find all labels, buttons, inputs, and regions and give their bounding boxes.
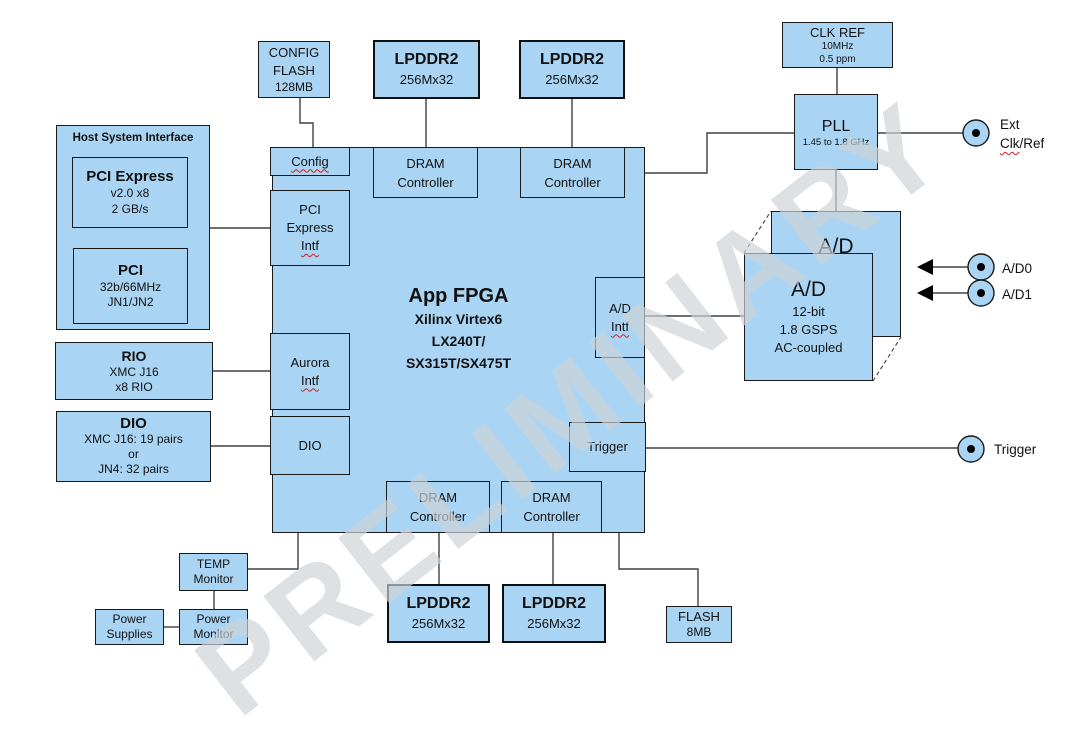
block-line: DRAM <box>532 488 570 507</box>
block-line: CONFIG <box>269 44 320 62</box>
dio-intf-block: DIO <box>270 416 350 475</box>
lpddr2-top-right-block: LPDDR2 256Mx32 <box>519 40 625 99</box>
ad0-label: A/D0 <box>1002 259 1032 278</box>
power-monitor-block: Power Monitor <box>179 609 248 645</box>
dashed-edge-topleft <box>744 211 771 253</box>
fpga-title-line: Xilinx Virtex6 <box>272 308 645 330</box>
block-line: Intf <box>301 237 319 255</box>
block-line: XMC J16 <box>109 365 158 381</box>
ext-clk-ref-label: Ext Clk/Ref <box>1000 115 1044 153</box>
config-intf-block: Config <box>270 147 350 176</box>
block-line: x8 RIO <box>115 380 152 396</box>
block-line: AC-coupled <box>775 339 843 357</box>
block-line: 1.45 to 1.8 GHz <box>803 137 870 149</box>
ad0-arrowhead-icon <box>917 259 933 275</box>
dram-controller-top-left-block: DRAM Controller <box>373 147 478 198</box>
ad-intf-block: A/D Intf <box>595 277 645 358</box>
block-title: CLK REF <box>810 25 865 40</box>
lpddr2-top-left-block: LPDDR2 256Mx32 <box>373 40 480 99</box>
dram-controller-bottom-left-block: DRAM Controller <box>386 481 490 533</box>
pci-express-intf-block: PCI Express Intf <box>270 190 350 266</box>
block-line: 0.5 ppm <box>819 53 855 66</box>
block-line: 32b/66MHz <box>100 280 161 296</box>
rio-block: RIO XMC J16 x8 RIO <box>55 342 213 400</box>
block-line: v2.0 x8 <box>111 186 150 202</box>
block-line: DRAM <box>406 154 444 173</box>
block-line: Controller <box>410 507 466 526</box>
block-line: TEMP <box>197 557 230 573</box>
block-line: 256Mx32 <box>400 70 453 89</box>
ad1-arrowhead-icon <box>917 285 933 301</box>
block-line: FLASH <box>678 609 720 625</box>
block-line: 128MB <box>275 80 313 96</box>
block-line: 256Mx32 <box>527 614 580 633</box>
block-line: Intf <box>611 318 629 336</box>
wire-configflash-config <box>300 98 313 147</box>
ref-word: /Ref <box>1020 136 1045 151</box>
host-system-interface-title: Host System Interface <box>57 131 209 145</box>
block-line: Monitor <box>193 627 233 643</box>
dashed-edge-bottomright <box>873 337 901 381</box>
ad1-label: A/D1 <box>1002 285 1032 304</box>
power-supplies-block: Power Supplies <box>95 609 164 645</box>
wire-fpga-flash <box>619 533 698 606</box>
block-line: PCI <box>299 201 321 219</box>
block-title: LPDDR2 <box>394 50 458 70</box>
trigger-intf-block: Trigger <box>569 422 646 472</box>
temp-monitor-block: TEMP Monitor <box>179 553 248 591</box>
config-flash-block: CONFIG FLASH 128MB <box>258 41 330 98</box>
dram-controller-bottom-right-block: DRAM Controller <box>501 481 602 533</box>
block-line: DRAM <box>553 154 591 173</box>
ext-clk-connector-dot <box>972 129 980 137</box>
block-title: Config <box>291 153 329 171</box>
lpddr2-bottom-left-block: LPDDR2 256Mx32 <box>387 584 490 643</box>
adc-front-block: A/D 12-bit 1.8 GSPS AC-coupled <box>744 253 873 381</box>
aurora-intf-block: Aurora Intf <box>270 333 350 410</box>
ad0-connector-dot <box>977 263 985 271</box>
block-title: DIO <box>298 437 321 455</box>
block-line: Monitor <box>193 572 233 588</box>
trigger-connector-dot <box>967 445 975 453</box>
ext-label-line: Clk/Ref <box>1000 134 1044 153</box>
block-line: Controller <box>523 507 579 526</box>
block-title: DIO <box>120 416 147 432</box>
block-line: Power <box>196 612 230 628</box>
pll-block: PLL 1.45 to 1.8 GHz <box>794 94 878 170</box>
ext-label-line: Ext <box>1000 115 1044 134</box>
block-line: DRAM <box>419 488 457 507</box>
fpga-title-line: App FPGA <box>272 284 645 308</box>
block-line: 1.8 GSPS <box>780 321 838 339</box>
block-line: FLASH <box>273 62 315 80</box>
block-line: A/D <box>609 300 631 318</box>
block-title: PCI Express <box>86 168 174 186</box>
block-line: 2 GB/s <box>112 202 149 218</box>
block-line: 256Mx32 <box>545 70 598 89</box>
block-title: RIO <box>122 347 147 365</box>
block-line: 12-bit <box>792 303 825 321</box>
dram-controller-top-right-block: DRAM Controller <box>520 147 625 198</box>
flash-block: FLASH 8MB <box>666 606 732 643</box>
pci-block: PCI 32b/66MHz JN1/JN2 <box>73 248 188 324</box>
block-title: PCI <box>118 262 143 280</box>
ad1-connector-dot <box>977 289 985 297</box>
block-line: Supplies <box>106 627 152 643</box>
block-title: LPDDR2 <box>540 50 604 70</box>
pci-express-block: PCI Express v2.0 x8 2 GB/s <box>72 157 188 228</box>
io-connectors <box>958 120 994 462</box>
block-line: Controller <box>397 173 453 192</box>
block-title: A/D <box>791 277 826 303</box>
block-line: 256Mx32 <box>412 614 465 633</box>
block-line: or <box>128 447 139 462</box>
block-line: 8MB <box>687 625 712 641</box>
trigger-label: Trigger <box>994 440 1036 459</box>
block-line: XMC J16: 19 pairs <box>84 432 183 447</box>
block-line: Express <box>287 219 334 237</box>
block-line: Aurora <box>290 354 329 372</box>
arrowheads <box>917 259 933 301</box>
block-title: LPDDR2 <box>522 594 586 614</box>
block-line: Power <box>112 612 146 628</box>
block-line: JN4: 32 pairs <box>98 462 169 477</box>
block-line: JN1/JN2 <box>107 295 153 311</box>
wire-fpga-tempmonitor <box>248 533 298 569</box>
block-title: Trigger <box>587 438 628 456</box>
block-title: PLL <box>822 116 850 137</box>
block-line: 10MHz <box>822 40 854 53</box>
block-title: LPDDR2 <box>406 594 470 614</box>
wire-pll-fpga <box>645 133 794 173</box>
block-line: Intf <box>301 372 319 390</box>
clk-word: Clk <box>1000 136 1020 151</box>
clk-ref-block: CLK REF 10MHz 0.5 ppm <box>782 22 893 68</box>
lpddr2-bottom-right-block: LPDDR2 256Mx32 <box>502 584 606 643</box>
block-line: Controller <box>544 173 600 192</box>
dio-external-block: DIO XMC J16: 19 pairs or JN4: 32 pairs <box>56 411 211 482</box>
